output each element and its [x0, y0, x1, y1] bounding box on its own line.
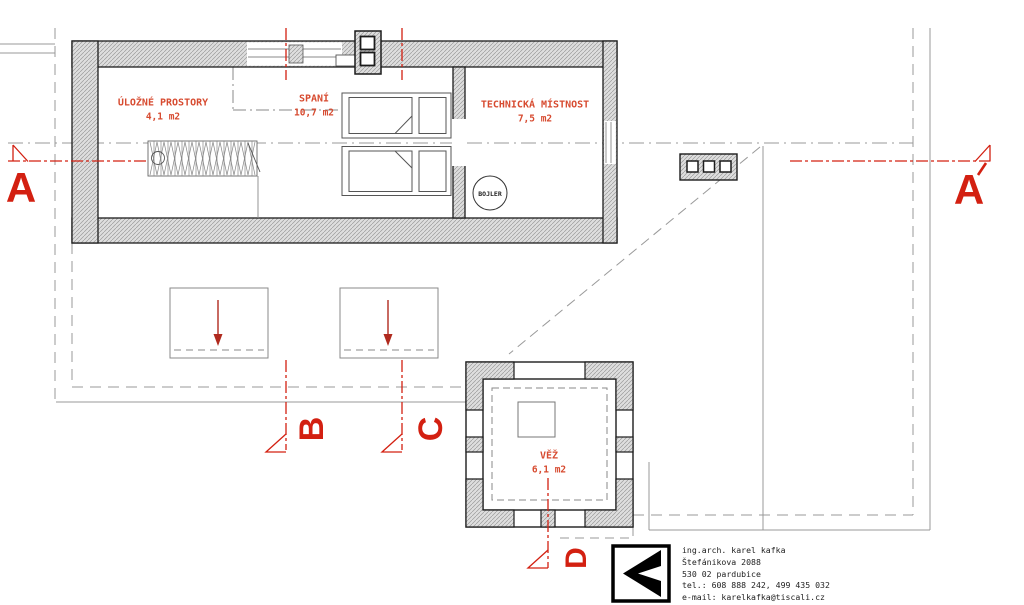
titleblock-phone: tel.: 608 888 242, 499 435 032 — [682, 581, 830, 589]
titleblock-email: e-mail: karelkafka@tiscali.cz — [682, 593, 825, 601]
window-top — [247, 42, 342, 65]
pillow — [419, 98, 446, 134]
section-letter-a: A — [6, 167, 36, 209]
tower-opening-square — [518, 402, 555, 437]
dormer-2 — [340, 288, 438, 358]
loft-stairs — [148, 141, 260, 218]
section-letter-b: B — [295, 417, 329, 442]
room-label-vez: VĚŽ — [540, 451, 558, 462]
utility-box — [680, 154, 737, 180]
architect-logo — [613, 546, 669, 601]
room-area-ulozne-prostory: 4,1 m2 — [146, 112, 180, 123]
section-flag-a-prime — [975, 145, 990, 162]
titleblock-architect: ing.arch. karel kafka — [682, 546, 786, 554]
window-right — [604, 121, 616, 164]
section-flag-c — [382, 434, 402, 452]
section-flag-d — [528, 550, 548, 568]
room-area-spani: 10,7 m2 — [294, 108, 334, 119]
bed-1 — [342, 93, 451, 138]
plan-linework — [0, 0, 1024, 605]
attic-height-boundary-line — [233, 67, 355, 110]
room-area-vez: 6,1 m2 — [532, 465, 566, 476]
titleblock-city: 530 02 pardubice — [682, 570, 761, 578]
room-label-ulozne-prostory: ÚLOŽNÉ PROSTORY — [118, 98, 208, 109]
room-label-spani: SPANÍ — [299, 94, 329, 105]
pillow — [419, 151, 446, 192]
section-flag-b — [266, 434, 286, 452]
floor-plan-drawing: ÚLOŽNÉ PROSTORY 4,1 m2 SPANÍ 10,7 m2 TEC… — [0, 0, 1024, 605]
section-letter-c: C — [414, 417, 448, 442]
window-mullion — [289, 45, 303, 63]
boiler-label: BOJLER — [478, 190, 501, 198]
titleblock-street: Štefánikova 2088 — [682, 558, 761, 566]
bed-2 — [342, 147, 451, 196]
tower-pier-right-mid — [616, 437, 633, 452]
section-letter-d: D — [562, 547, 592, 569]
chimney-flue-notch — [336, 55, 356, 66]
room-label-technicka-mistnost: TECHNICKÁ MÍSTNOST — [481, 100, 589, 111]
wall-bottom — [72, 218, 617, 243]
dormer-1 — [170, 288, 268, 358]
room-area-technicka-mistnost: 7,5 m2 — [518, 114, 552, 125]
wall-left — [72, 41, 98, 243]
tower — [466, 362, 633, 527]
section-letter-a-prime: A — [954, 169, 984, 211]
beds — [342, 93, 451, 196]
section-flag-a — [13, 145, 28, 162]
dormers — [170, 288, 438, 358]
tower-pier-left-mid — [466, 437, 483, 452]
door-opening-partition — [452, 119, 466, 166]
